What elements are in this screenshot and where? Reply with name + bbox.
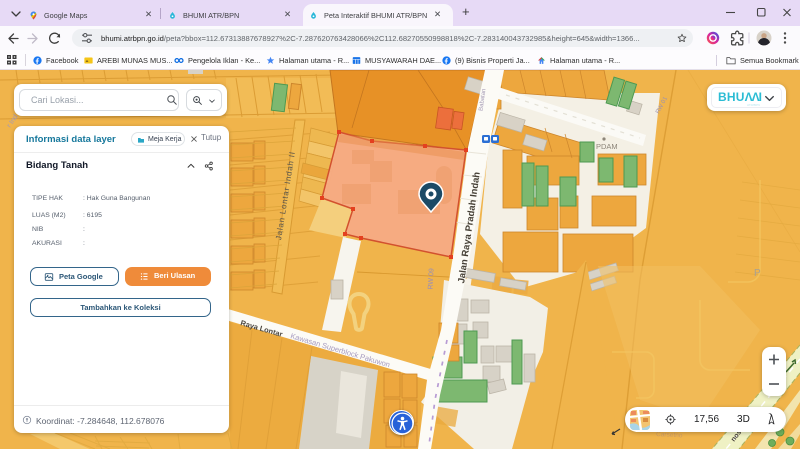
svg-text:RW 09: RW 09	[427, 268, 435, 290]
svg-text:PDAM: PDAM	[596, 142, 618, 151]
svg-text:P: P	[754, 268, 761, 279]
svg-text:Carsetno: Carsetno	[656, 431, 683, 439]
